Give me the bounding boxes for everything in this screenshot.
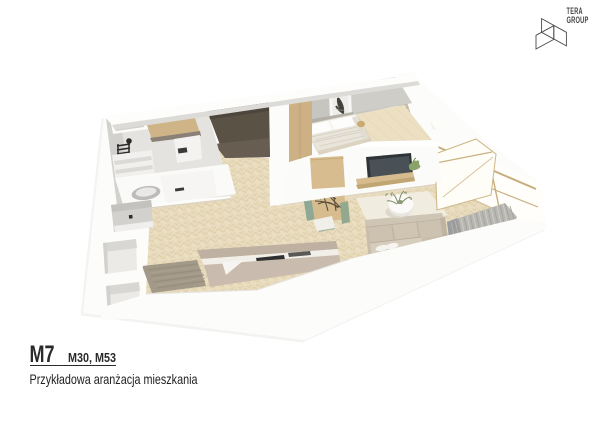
svg-text:M7: M7: [30, 342, 55, 368]
svg-text:M30, M53: M30, M53: [68, 350, 116, 365]
svg-text:GROUP: GROUP: [567, 15, 589, 26]
svg-text:Przykładowa aranżacja mieszkan: Przykładowa aranżacja mieszkania: [30, 372, 198, 387]
